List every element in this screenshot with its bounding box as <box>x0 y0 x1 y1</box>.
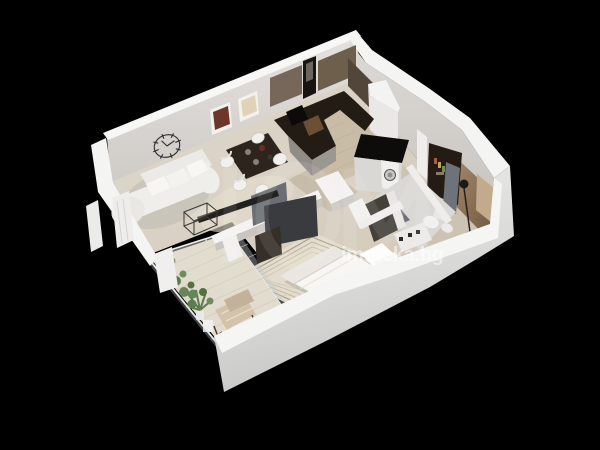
svg-text:imoteka.bg: imoteka.bg <box>341 244 444 266</box>
